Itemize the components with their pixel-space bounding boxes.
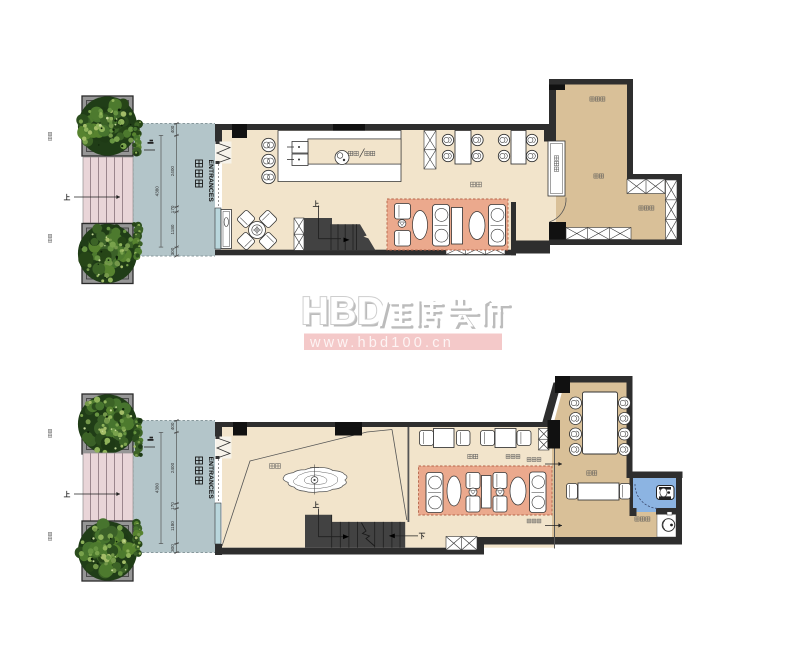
svg-text:1180: 1180	[170, 224, 175, 234]
svg-text:ENTRANCES: ENTRANCES	[207, 160, 214, 203]
svg-text:4380: 4380	[155, 186, 160, 197]
svg-text:170: 170	[170, 502, 175, 510]
svg-text:4380: 4380	[155, 482, 160, 493]
svg-text:400: 400	[170, 125, 175, 133]
svg-text:HBD: HBD	[301, 290, 384, 333]
svg-text:1180: 1180	[170, 521, 175, 531]
svg-text:170: 170	[170, 205, 175, 213]
svg-text:400: 400	[170, 422, 175, 430]
svg-text:300: 300	[170, 247, 175, 255]
svg-text:300: 300	[170, 544, 175, 552]
svg-text:2400: 2400	[170, 166, 175, 177]
svg-text:www.hbd100.cn: www.hbd100.cn	[309, 335, 454, 351]
svg-text:ENTRANCES: ENTRANCES	[207, 457, 214, 500]
svg-text:2400: 2400	[170, 462, 175, 473]
